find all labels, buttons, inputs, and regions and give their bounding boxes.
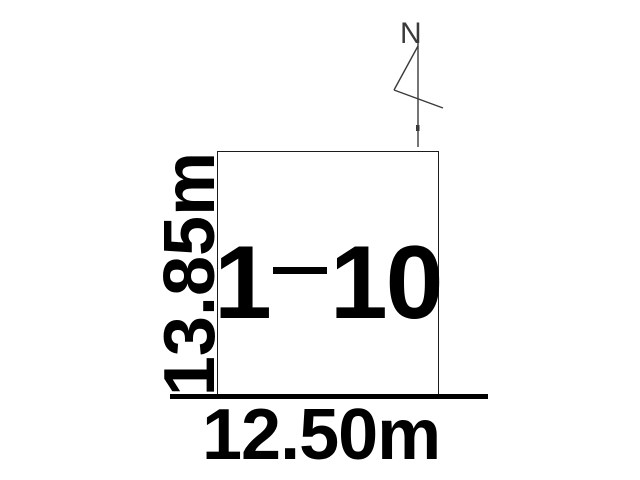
width-dimension-label: 12.50m (202, 399, 440, 471)
lot-number-dash (273, 267, 327, 274)
lot-number: 1 10 (214, 231, 442, 335)
north-arrow-node (416, 125, 420, 131)
north-arrow-icon (375, 10, 460, 160)
lot-number-suffix: 10 (330, 231, 442, 335)
north-arrow-wing-left (394, 46, 418, 90)
plot-diagram: N 1 10 13.85m 12.50m (0, 0, 640, 480)
height-dimension-label: 13.85m (154, 151, 226, 397)
